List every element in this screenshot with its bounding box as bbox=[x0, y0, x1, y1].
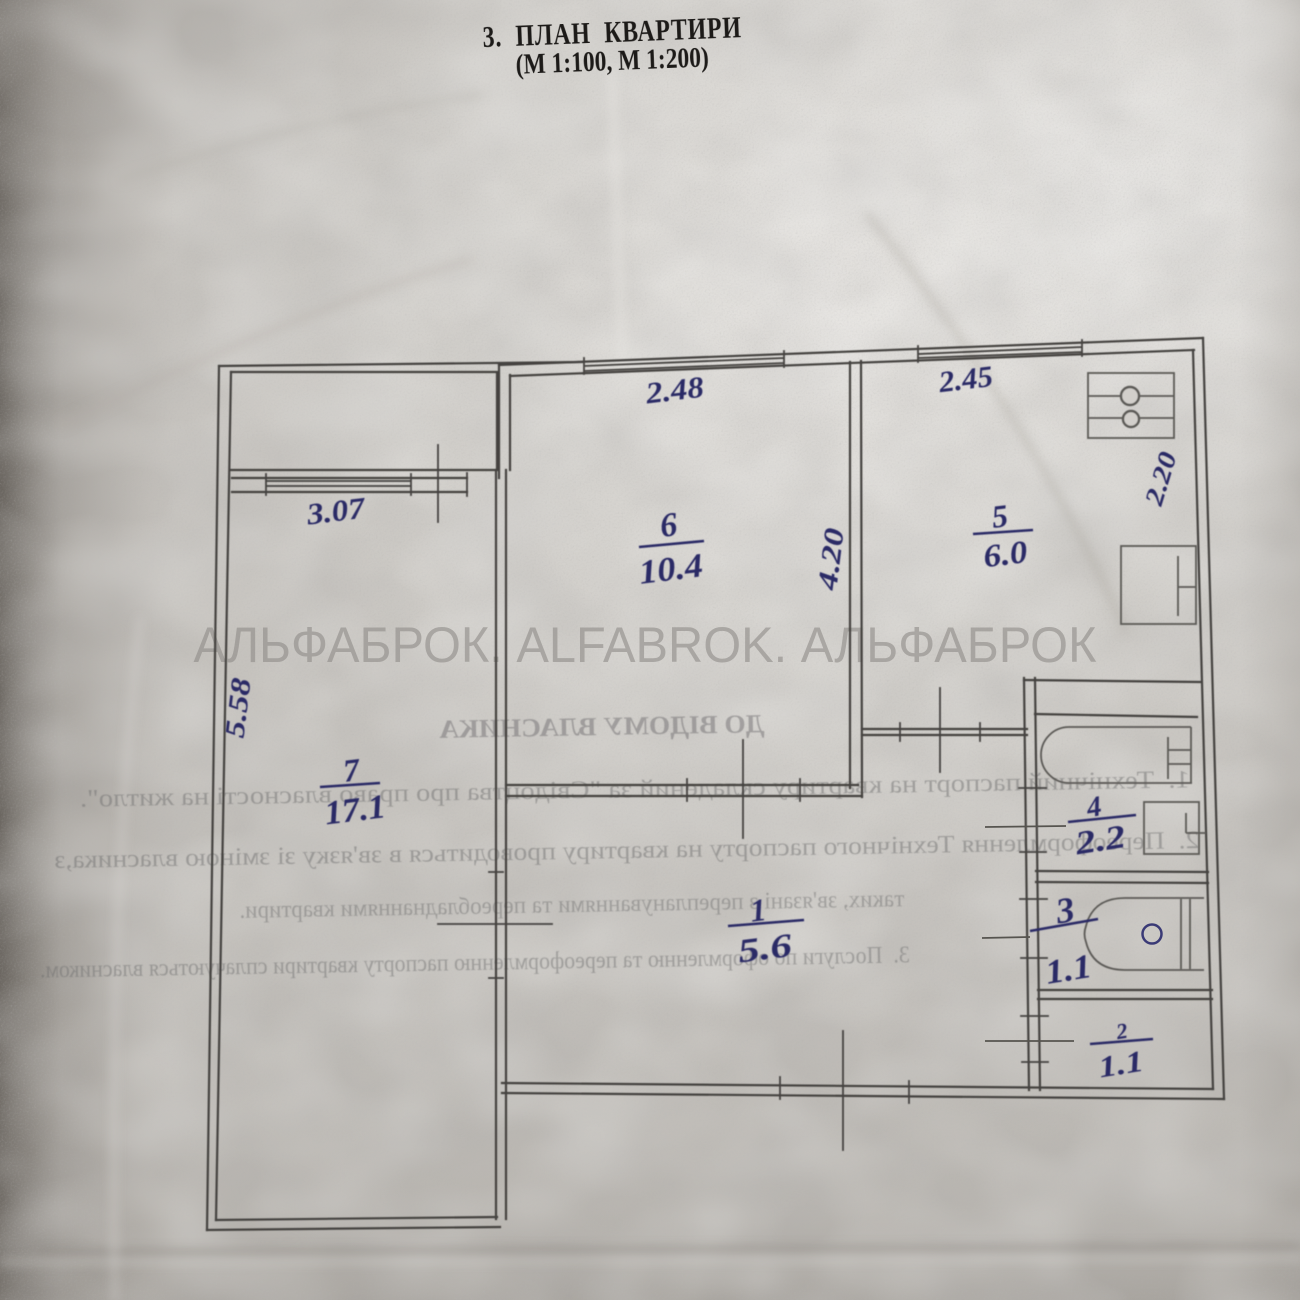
svg-text:17.1: 17.1 bbox=[323, 788, 388, 832]
svg-text:АЛЬФАБРОК. ALFABROK. АЛЬФАБРОК: АЛЬФАБРОК. ALFABROK. АЛЬФАБРОК bbox=[194, 617, 1097, 673]
svg-text:6.0: 6.0 bbox=[981, 533, 1029, 574]
svg-text:ДО ВІДОМУ ВЛАСНИКА: ДО ВІДОМУ ВЛАСНИКА bbox=[439, 709, 765, 744]
svg-text:2.45: 2.45 bbox=[936, 360, 995, 399]
svg-text:1.1: 1.1 bbox=[1096, 1045, 1146, 1085]
svg-text:10.4: 10.4 bbox=[637, 547, 705, 592]
svg-text:1.1: 1.1 bbox=[1043, 948, 1094, 992]
svg-text:5.6: 5.6 bbox=[736, 927, 794, 970]
